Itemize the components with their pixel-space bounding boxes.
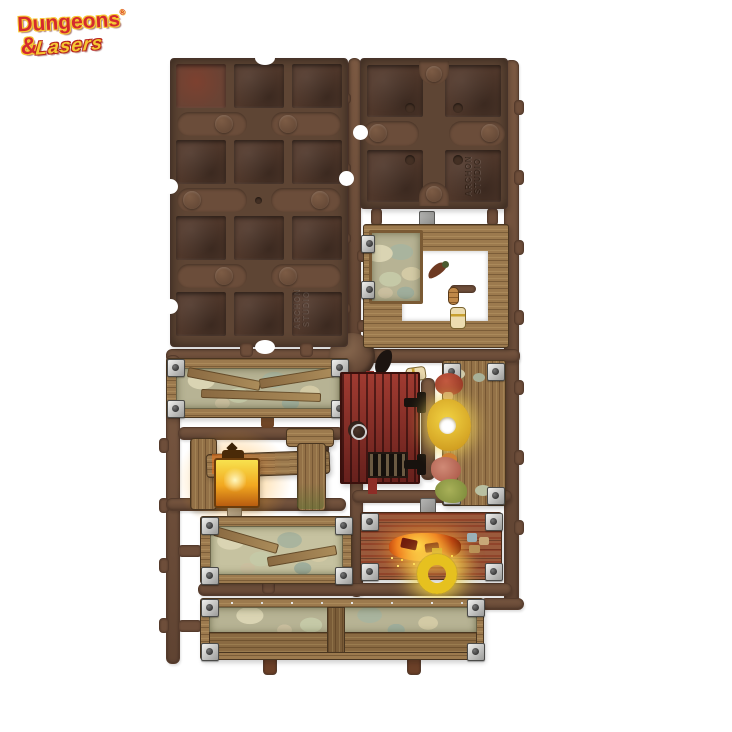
- edge-notch: [163, 179, 178, 194]
- edge-notch: [255, 340, 275, 354]
- tile-recess: [176, 64, 226, 108]
- alignment-hole: [405, 103, 415, 113]
- sprue-runner-bottom-arm: [480, 598, 524, 610]
- stone-chip: [473, 373, 485, 382]
- tile-recess: [292, 64, 342, 108]
- registered-mark: ®: [119, 8, 125, 17]
- metal-corner-bracket: [487, 363, 505, 381]
- stone-timber-wall-bottom-left: [200, 516, 352, 584]
- bridge-tab: [178, 620, 202, 632]
- long-stone-timber-wall: [200, 598, 484, 660]
- connector-peg: [279, 115, 297, 133]
- horn-tip: [442, 261, 449, 268]
- alignment-hole: [255, 197, 262, 204]
- connector-peg: [215, 267, 233, 285]
- peg-stub: [300, 343, 313, 357]
- metal-corner-bracket: [361, 281, 375, 299]
- product-photo-sprue: ARCHONSTUDIO ARCHONSTUDIO: [0, 0, 732, 732]
- clip-tab: [514, 310, 524, 325]
- clip-tab: [514, 450, 524, 465]
- clip-tab: [514, 380, 524, 395]
- floor-tile-panel-small: ARCHONSTUDIO: [360, 58, 508, 209]
- mushroom-ring-hole: [439, 417, 456, 434]
- logo-lasers: Lasers: [35, 33, 104, 61]
- tile-recess: [234, 216, 284, 260]
- alignment-hole: [405, 155, 415, 165]
- mushroom-timber-wall: [442, 360, 506, 506]
- metal-corner-bracket: [167, 400, 185, 418]
- iron-ring-handle: [351, 424, 367, 440]
- peg-stub: [240, 343, 253, 357]
- edge-notch: [339, 171, 354, 186]
- flask: [450, 307, 466, 329]
- metal-corner-bracket: [485, 563, 503, 581]
- stone-infill: [369, 230, 423, 304]
- lantern-body: [214, 458, 260, 508]
- alignment-hole: [453, 103, 463, 113]
- connector-peg: [426, 186, 442, 202]
- center-post: [327, 607, 345, 653]
- connector-slot: [177, 112, 247, 136]
- edge-notch: [353, 125, 368, 140]
- sausage: [448, 287, 459, 305]
- stone-chip: [479, 537, 489, 545]
- tile-recess: [234, 140, 284, 184]
- bridge-tab: [178, 545, 202, 557]
- clip-tab: [514, 240, 524, 255]
- metal-corner-bracket: [361, 563, 379, 581]
- metal-corner-bracket: [201, 643, 219, 661]
- black-hinge: [417, 392, 426, 413]
- brand-logo: Dungeons® &Lasers: [17, 7, 149, 62]
- connector-peg: [369, 124, 387, 142]
- edge-notch: [163, 299, 178, 314]
- green-moss-cluster: [435, 479, 467, 503]
- pink-mushroom-cluster: [431, 457, 461, 482]
- metal-corner-bracket: [485, 513, 503, 531]
- door-grate: [368, 452, 408, 478]
- rivet-dots: [231, 602, 233, 604]
- connector-peg: [481, 124, 499, 142]
- metal-corner-bracket: [201, 567, 219, 585]
- metal-corner-bracket: [201, 599, 219, 617]
- connector-slot: [271, 188, 341, 212]
- lantern-core: [224, 468, 246, 492]
- clip-tab: [159, 618, 169, 633]
- door-bottom-stub: [368, 478, 377, 494]
- metal-corner-bracket: [487, 487, 505, 505]
- tile-recess: [234, 64, 284, 108]
- metal-corner-bracket: [335, 567, 353, 585]
- clip-tab: [514, 520, 524, 535]
- stone-timber-wall-top-left: [166, 358, 349, 418]
- tile-recess: [176, 292, 226, 336]
- sprue-runner-bottom: [198, 583, 512, 596]
- metal-corner-bracket: [361, 235, 375, 253]
- floor-tile-panel-large: ARCHONSTUDIO: [170, 58, 348, 347]
- metal-corner-bracket: [335, 517, 353, 535]
- edge-notch: [255, 51, 275, 65]
- metal-corner-bracket: [201, 517, 219, 535]
- doorway-frame: [363, 224, 509, 348]
- connector-peg: [183, 191, 201, 209]
- metal-corner-bracket: [467, 643, 485, 661]
- metal-corner-bracket: [361, 513, 379, 531]
- metal-corner-bracket: [467, 599, 485, 617]
- embossed-brand: ARCHONSTUDIO: [447, 148, 499, 204]
- stone-chip: [467, 533, 477, 542]
- connector-slot: [177, 264, 247, 288]
- clip-tab: [159, 558, 169, 573]
- glowing-ring: [417, 554, 457, 594]
- connector-peg: [426, 66, 442, 82]
- embossed-brand-faint: ARCHONSTUDIO: [275, 283, 327, 335]
- tile-recess: [292, 216, 342, 260]
- tile-recess: [292, 140, 342, 184]
- clip-tab: [514, 100, 524, 115]
- black-hinge: [417, 454, 426, 475]
- metal-corner-bracket: [167, 359, 185, 377]
- clip-tab: [514, 170, 524, 185]
- connector-peg: [215, 115, 233, 133]
- logo-lasers-line: &Lasers: [20, 27, 149, 62]
- clip-tab: [159, 438, 169, 453]
- tile-recess: [176, 216, 226, 260]
- tile-recess: [176, 140, 226, 184]
- moss-overlay: [297, 483, 324, 509]
- connector-peg: [311, 191, 329, 209]
